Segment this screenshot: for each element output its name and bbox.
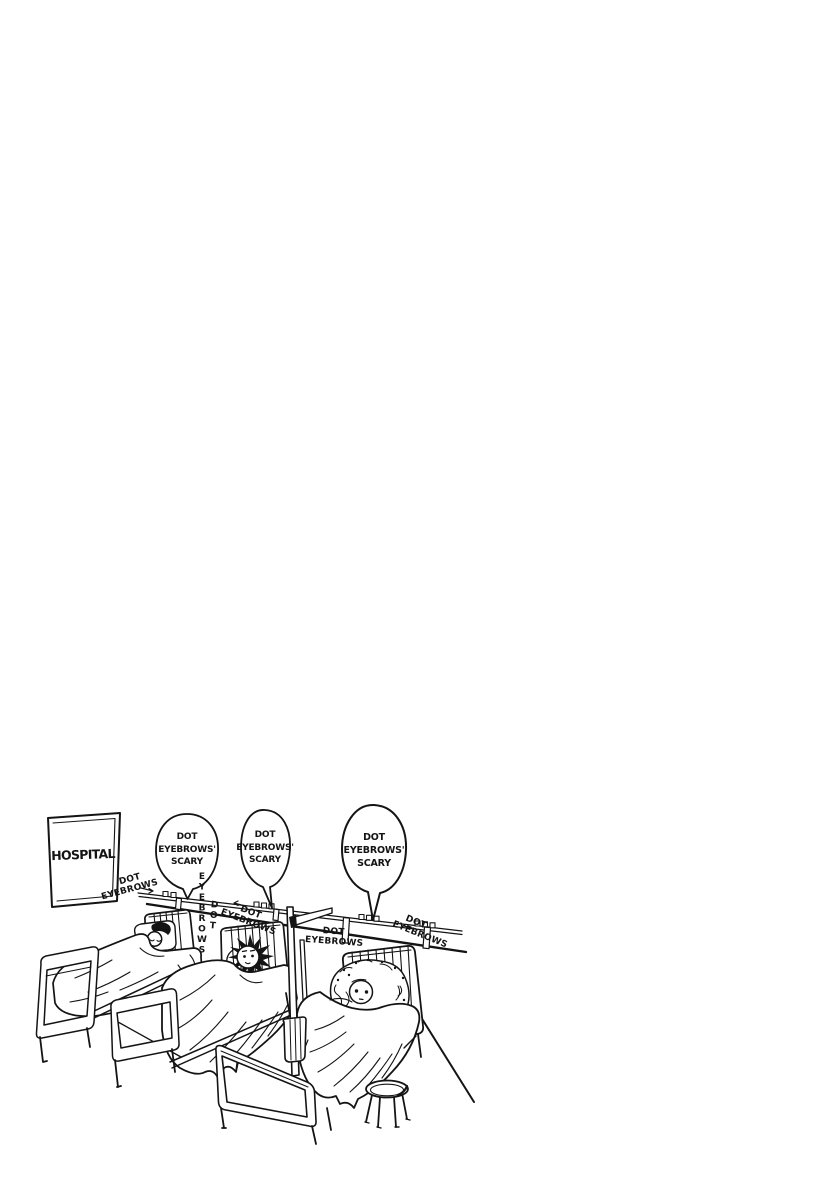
bubble-2-line-1: DOT — [231, 829, 299, 842]
patient-3-mouth — [360, 999, 364, 1000]
patient-3-eye-left — [355, 989, 358, 992]
stool — [365, 1081, 410, 1129]
bubble-2-line-3: SCARY — [231, 854, 299, 867]
patient-2-head — [237, 946, 259, 968]
bubble-2-line-2: EYEBROWS' — [231, 842, 299, 855]
iv-arm — [293, 908, 332, 926]
bubble-1-line-1: DOT — [152, 831, 222, 844]
floor-line — [419, 1014, 474, 1102]
bubble-3-line-1: DOT — [337, 831, 411, 844]
bubble-1-line-2: EYEBROWS' — [152, 844, 222, 857]
iv-bag — [283, 1017, 306, 1062]
patient-2-eye-right — [251, 955, 254, 958]
speech-bubble-1-text: DOT EYEBROWS' SCARY — [152, 831, 222, 869]
bubble-3-line-2: EYEBROWS' — [337, 844, 411, 857]
blanket-2 — [162, 960, 297, 1080]
bubble-1-line-3: SCARY — [152, 856, 222, 869]
patient-3-eye-right — [365, 990, 368, 993]
manga-page: HOSPITAL DOT EYEBROWS' SCARY DOT EYEBROW… — [0, 0, 840, 1200]
label-dot-eyebrows-center: DOT EYEBROWS — [305, 926, 364, 949]
hospital-sign-text: HOSPITAL — [50, 846, 116, 863]
hospital-scene-drawing — [0, 0, 840, 1200]
patient-2-eye-left — [243, 955, 246, 958]
bubble-3-line-3: SCARY — [337, 857, 411, 870]
patient-3-head — [350, 981, 373, 1004]
speech-bubble-2-text: DOT EYEBROWS' SCARY — [231, 829, 299, 867]
label-eyebrows-vertical: EYEBROWS — [197, 872, 207, 956]
speech-bubble-3-text: DOT EYEBROWS' SCARY — [337, 831, 411, 870]
